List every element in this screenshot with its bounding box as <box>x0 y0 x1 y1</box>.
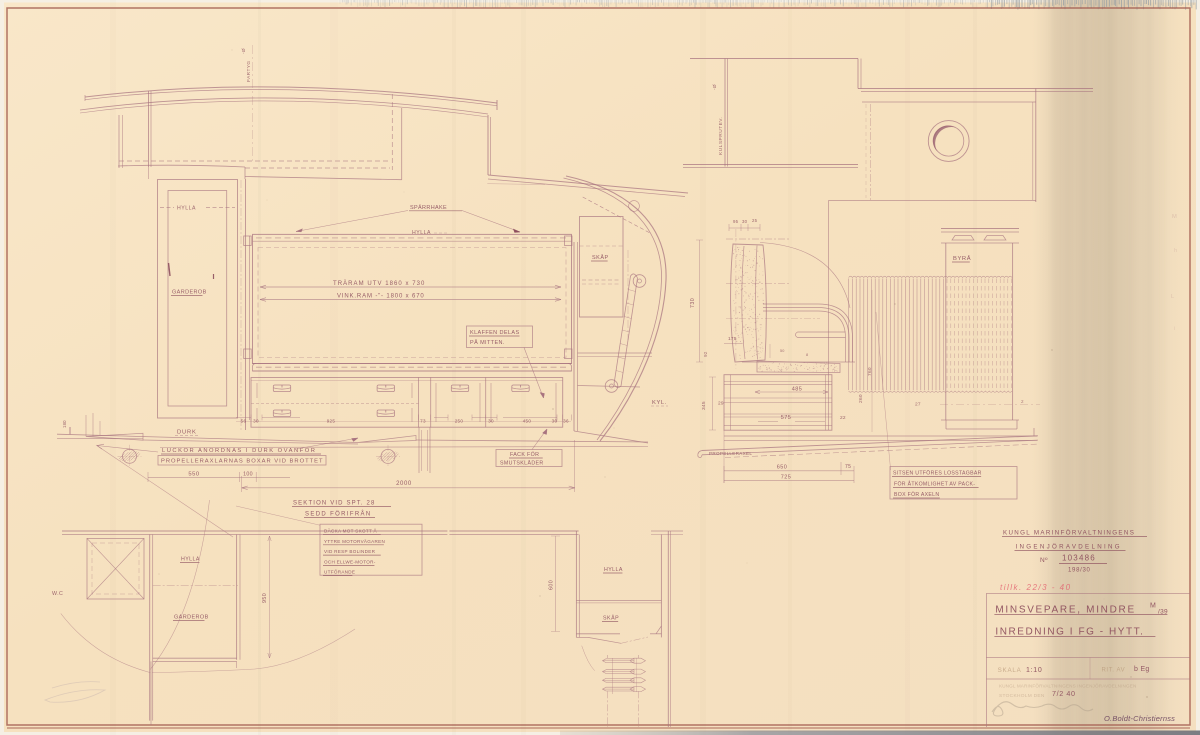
svg-text:SKÅP: SKÅP <box>592 254 609 261</box>
svg-text:1:10: 1:10 <box>1026 667 1042 674</box>
svg-text:SMUTSKLÄDER: SMUTSKLÄDER <box>500 460 544 467</box>
svg-text:TRÄRAM UTV 1860 x 730: TRÄRAM UTV 1860 x 730 <box>333 280 425 287</box>
svg-text:SEDD FÖRIFRÅN: SEDD FÖRIFRÅN <box>305 511 372 518</box>
svg-text:SKÅP: SKÅP <box>603 615 619 622</box>
svg-text:2000: 2000 <box>396 481 412 487</box>
svg-text:KLAFFEN DELAS: KLAFFEN DELAS <box>470 330 520 336</box>
svg-text:BYRÅ: BYRÅ <box>953 255 971 262</box>
svg-text:GARDEROB: GARDEROB <box>174 615 209 621</box>
svg-text:INREDNING I FG - HYTT.: INREDNING I FG - HYTT. <box>995 627 1144 638</box>
svg-text:2: 2 <box>1021 399 1024 404</box>
svg-text:485: 485 <box>792 387 802 393</box>
svg-text:M: M <box>1172 214 1177 220</box>
svg-text:56: 56 <box>241 419 247 424</box>
svg-text:180: 180 <box>62 420 67 428</box>
svg-text:UTFÖRANDE: UTFÖRANDE <box>324 569 355 575</box>
svg-text:36: 36 <box>563 419 569 424</box>
svg-text:550: 550 <box>188 472 199 478</box>
svg-text:198/30: 198/30 <box>1068 568 1091 574</box>
svg-text:GARDEROB: GARDEROB <box>172 290 207 296</box>
svg-text:LUCKOR ANORDNAS I DURK OVANFÖR: LUCKOR ANORDNAS I DURK OVANFÖR <box>162 447 316 454</box>
svg-text:260: 260 <box>858 394 864 403</box>
svg-text:345: 345 <box>701 401 707 410</box>
svg-text:22: 22 <box>840 415 846 421</box>
svg-text:75: 75 <box>845 464 851 470</box>
svg-text:tillk. 22/3 - 40: tillk. 22/3 - 40 <box>1000 583 1072 592</box>
svg-text:30: 30 <box>253 419 259 424</box>
svg-text:Nº: Nº <box>1040 557 1048 564</box>
svg-text:95: 95 <box>733 219 739 224</box>
svg-text:7/2 40: 7/2 40 <box>1052 689 1076 698</box>
svg-text:175: 175 <box>728 336 737 342</box>
svg-text:DÄCKA MOT SKOTT Å: DÄCKA MOT SKOTT Å <box>324 528 378 534</box>
svg-text:STOCKHOLM DEN: STOCKHOLM DEN <box>999 693 1045 699</box>
svg-text:KYL.: KYL. <box>652 400 667 406</box>
svg-text:725: 725 <box>781 474 791 480</box>
svg-text:103486: 103486 <box>1062 554 1096 563</box>
svg-text:/39: /39 <box>1158 609 1168 616</box>
svg-text:YTTRE MOTORVÄGAREN: YTTRE MOTORVÄGAREN <box>324 538 385 544</box>
svg-text:450: 450 <box>523 419 532 424</box>
svg-text:575: 575 <box>781 415 791 421</box>
svg-text:30: 30 <box>742 219 748 224</box>
svg-text:VINK.RAM -”- 1800 x 670: VINK.RAM -”- 1800 x 670 <box>337 294 425 300</box>
svg-text:30: 30 <box>552 419 558 424</box>
svg-text:MINSVEPARE, MINDRE: MINSVEPARE, MINDRE <box>995 605 1135 616</box>
svg-text:250: 250 <box>455 419 464 424</box>
svg-text:O.Boldt-Christiernss: O.Boldt-Christiernss <box>1104 714 1175 723</box>
svg-text:SKALA: SKALA <box>998 667 1022 674</box>
svg-text:SEKTION VID SPT. 28: SEKTION VID SPT. 28 <box>293 501 376 507</box>
svg-text:-Ø: -Ø <box>712 84 718 90</box>
svg-text:950: 950 <box>262 593 268 603</box>
svg-text:SITSEN UTFÖRES LOSSTAGBAR: SITSEN UTFÖRES LOSSTAGBAR <box>893 470 982 477</box>
svg-text:27: 27 <box>915 402 921 408</box>
svg-text:FARTYG: FARTYG <box>246 60 252 82</box>
svg-text:KULSPRUTEV.: KULSPRUTEV. <box>718 117 724 155</box>
svg-text:650: 650 <box>777 465 787 471</box>
svg-text:i: i <box>1174 326 1176 332</box>
svg-text:KUNGL MARINFÖRVALTNINGENS: KUNGL MARINFÖRVALTNINGENS <box>1003 530 1135 537</box>
svg-text:h: h <box>1174 248 1178 254</box>
svg-text:29: 29 <box>718 401 724 407</box>
svg-text:OCH ELLWE-MOTOR-: OCH ELLWE-MOTOR- <box>324 559 376 564</box>
svg-text:HYLLA: HYLLA <box>181 557 200 563</box>
svg-text:PÅ MITTEN.: PÅ MITTEN. <box>470 339 505 346</box>
svg-text:HYLLA: HYLLA <box>177 206 196 212</box>
svg-text:DURK: DURK <box>177 430 197 436</box>
svg-text:50: 50 <box>780 349 785 353</box>
svg-text:HYLLA: HYLLA <box>604 567 623 573</box>
svg-text:b Eg: b Eg <box>1134 666 1150 673</box>
svg-text:PROPELLERAXEL: PROPELLERAXEL <box>709 451 752 456</box>
svg-text:M: M <box>1150 603 1156 610</box>
svg-text:L: L <box>1171 294 1175 300</box>
svg-text:25: 25 <box>752 218 758 223</box>
svg-text:30: 30 <box>488 419 494 424</box>
svg-text:INGENJÖRAVDELNING: INGENJÖRAVDELNING <box>1016 544 1122 551</box>
svg-text:600: 600 <box>549 580 555 590</box>
svg-text:92: 92 <box>703 351 708 357</box>
svg-text:RIT. AV: RIT. AV <box>1102 668 1126 674</box>
svg-text:SPÄRRHAKE: SPÄRRHAKE <box>410 204 447 211</box>
svg-text:73: 73 <box>420 419 426 424</box>
svg-text:8: 8 <box>806 353 808 357</box>
svg-text:FACK FÖR: FACK FÖR <box>510 451 539 458</box>
svg-text:PROPELLERAXLARNAS BOXAR VID BR: PROPELLERAXLARNAS BOXAR VID BROTTET <box>161 459 324 465</box>
svg-text:730: 730 <box>690 298 696 308</box>
svg-text:VID RESP BOLINDER: VID RESP BOLINDER <box>324 549 376 554</box>
svg-text:925: 925 <box>327 419 336 424</box>
svg-text:KUNGL MARINFÖRVALTNINGENS INGE: KUNGL MARINFÖRVALTNINGENS INGENJÖRAVDELN… <box>999 683 1136 689</box>
svg-text:FÖR ÅTKOMLIGHET AV PACK-: FÖR ÅTKOMLIGHET AV PACK- <box>894 481 975 488</box>
svg-text:HYLLA: HYLLA <box>412 230 431 236</box>
svg-text:100: 100 <box>243 472 253 478</box>
svg-text:-Ø: -Ø <box>241 48 247 54</box>
svg-text:BOX FÖR AXELN: BOX FÖR AXELN <box>894 491 939 498</box>
svg-text:W.C: W.C <box>52 591 63 597</box>
